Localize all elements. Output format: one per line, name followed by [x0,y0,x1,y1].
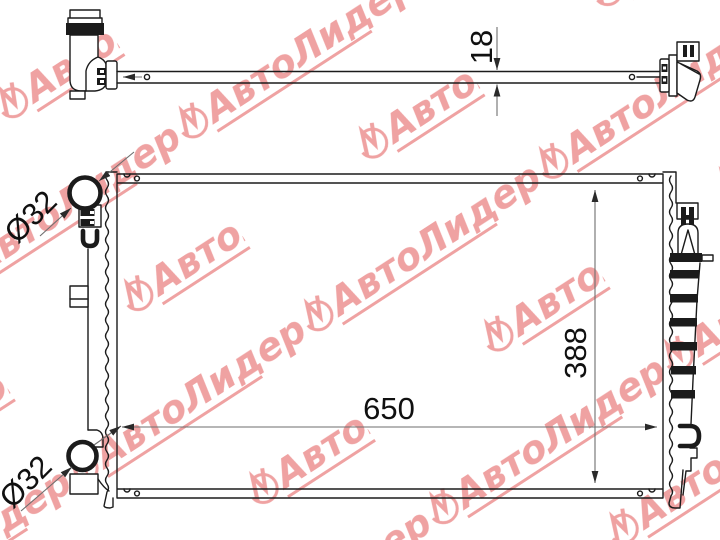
height-label: 388 [558,327,593,379]
thickness-label: 18 [464,30,499,64]
drain-pin [702,255,713,261]
outlet-pipe-opening [69,442,97,470]
inlet-pipe-opening [70,178,101,209]
drain-dome [678,224,698,257]
bar-hole-right [629,74,634,79]
radiator-technical-drawing: АвтоЛидер АвтоЛидер [0,0,720,540]
bar-hole-left [144,74,149,79]
radiator-drawing-page: АвтоЛидер АвтоЛидер [0,0,720,540]
width-label: 650 [363,391,415,426]
left-mount-tab [70,286,88,307]
